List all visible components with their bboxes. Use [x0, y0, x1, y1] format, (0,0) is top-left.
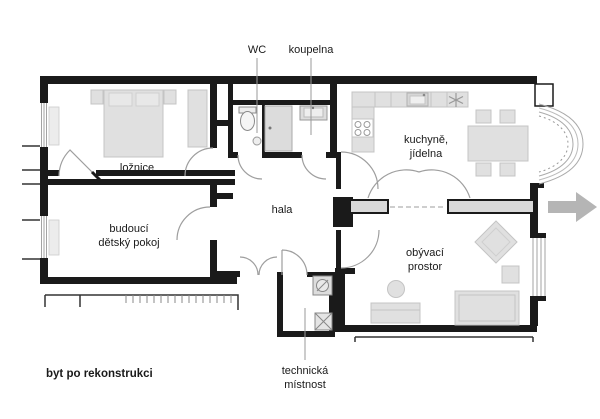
living-bottom-wall: [345, 325, 537, 332]
chair-top-left: [476, 110, 491, 123]
washbasin-bowl: [304, 108, 323, 117]
living-furniture: [371, 221, 519, 325]
washbasin-faucet: [312, 107, 314, 109]
party-wall-bottom: [47, 179, 235, 185]
living-label-2: prostor: [408, 261, 443, 273]
pocket-door-left: [350, 200, 388, 213]
kitchen-label-2: jídelna: [409, 148, 443, 160]
arrow-right-icon: [548, 192, 597, 222]
bay-pillar: [535, 84, 553, 106]
children-right-wall-chunk: [217, 193, 233, 199]
pocket-doors: [350, 200, 534, 213]
sink-faucet: [423, 94, 426, 97]
nightstand-left: [91, 90, 103, 104]
dining-table: [468, 126, 528, 161]
left-wall-mid: [40, 147, 48, 216]
kitchen-label-1: kuchyně,: [404, 134, 448, 146]
bath-south-wall-a: [228, 152, 238, 158]
bedroom-right-wall: [210, 84, 217, 148]
party-wall-top-left: [47, 170, 59, 176]
chair-bottom-left: [476, 163, 491, 176]
bath-south-wall-b: [262, 152, 302, 158]
bay-bottom-stub: [530, 183, 544, 188]
sideboard: [371, 303, 420, 323]
party-wall-top-right: [96, 170, 235, 176]
shower-handle: [269, 127, 272, 130]
tech-left-wall: [277, 272, 283, 337]
side-table: [502, 266, 519, 283]
pocket-door-right: [448, 200, 534, 213]
chair-top-right: [500, 110, 515, 123]
bedroom-radiator: [49, 107, 59, 145]
living-window: [530, 238, 546, 296]
bedroom-entry-door: [59, 150, 96, 176]
sofa: [455, 291, 519, 325]
children-window: [40, 216, 59, 258]
bathroom-door: [302, 155, 326, 179]
living-label-1: obývací: [406, 247, 444, 259]
living-east-wall-lower: [530, 296, 538, 326]
floor-drain: [253, 137, 261, 145]
hala-se-stub: [335, 268, 355, 274]
children-room-door: [177, 207, 210, 240]
toilet-bowl: [241, 112, 255, 131]
tech-bottom-wall: [277, 331, 335, 337]
bath-east-wall: [330, 84, 337, 152]
bath-south-wall-c: [326, 152, 337, 158]
bedroom-window: [40, 103, 59, 147]
living-window-stub-top: [530, 233, 546, 238]
children-bottom-wall: [40, 277, 237, 284]
nightstand-right: [164, 90, 176, 104]
hall-label: hala: [272, 204, 294, 216]
bathroom-label: koupelna: [289, 44, 335, 56]
living-hall-door: [341, 230, 379, 268]
children-room-label-2: dětský pokoj: [98, 237, 159, 249]
bathroom-fixtures: [239, 106, 327, 151]
pillow-right: [136, 93, 159, 106]
top-wall: [40, 76, 537, 84]
hala-notch-wall: [217, 120, 229, 126]
left-wall-upper: [40, 76, 48, 103]
floor-plan-page: WC koupelna ložnice budoucí dětský pokoj…: [0, 0, 600, 419]
wc-bath-top-wall: [228, 100, 335, 105]
sink-basin: [410, 96, 425, 104]
wc-label: WC: [248, 44, 266, 56]
bedroom-furniture: [91, 90, 207, 157]
chair-bottom-right: [500, 163, 515, 176]
kitchen-door-leaf: [336, 152, 341, 189]
children-room-label-1: budoucí: [109, 223, 148, 235]
terrace-edge: [45, 295, 238, 310]
pillow-left: [109, 93, 132, 106]
plan-caption: byt po rekonstrukci: [46, 368, 153, 380]
kitchen-double-door-right: [419, 170, 470, 198]
children-right-wall-lower: [210, 240, 217, 284]
utility-label-1: technická: [282, 365, 329, 377]
tech-room-door: [282, 250, 307, 275]
hall-double-door-left: [240, 257, 258, 275]
hala-se-corner-wall: [335, 268, 345, 332]
utility-label-2: místnost: [284, 379, 326, 391]
bay-window: [539, 104, 583, 184]
wc-left-wall: [228, 84, 233, 152]
children-right-wall-upper: [210, 185, 217, 207]
floor-plan-drawing: WC koupelna ložnice budoucí dětský pokoj…: [0, 0, 600, 419]
wardrobe: [188, 90, 207, 147]
bedroom-label: ložnice: [120, 162, 154, 174]
hall-double-door-right: [259, 257, 277, 275]
children-radiator: [49, 220, 59, 255]
coffee-table: [388, 281, 405, 298]
kitchen-hall-door: [341, 152, 378, 189]
terrace-hatch: [126, 295, 231, 303]
hala-south-wall: [213, 271, 240, 277]
wc-door: [238, 155, 262, 179]
living-door-leaf: [336, 230, 341, 268]
